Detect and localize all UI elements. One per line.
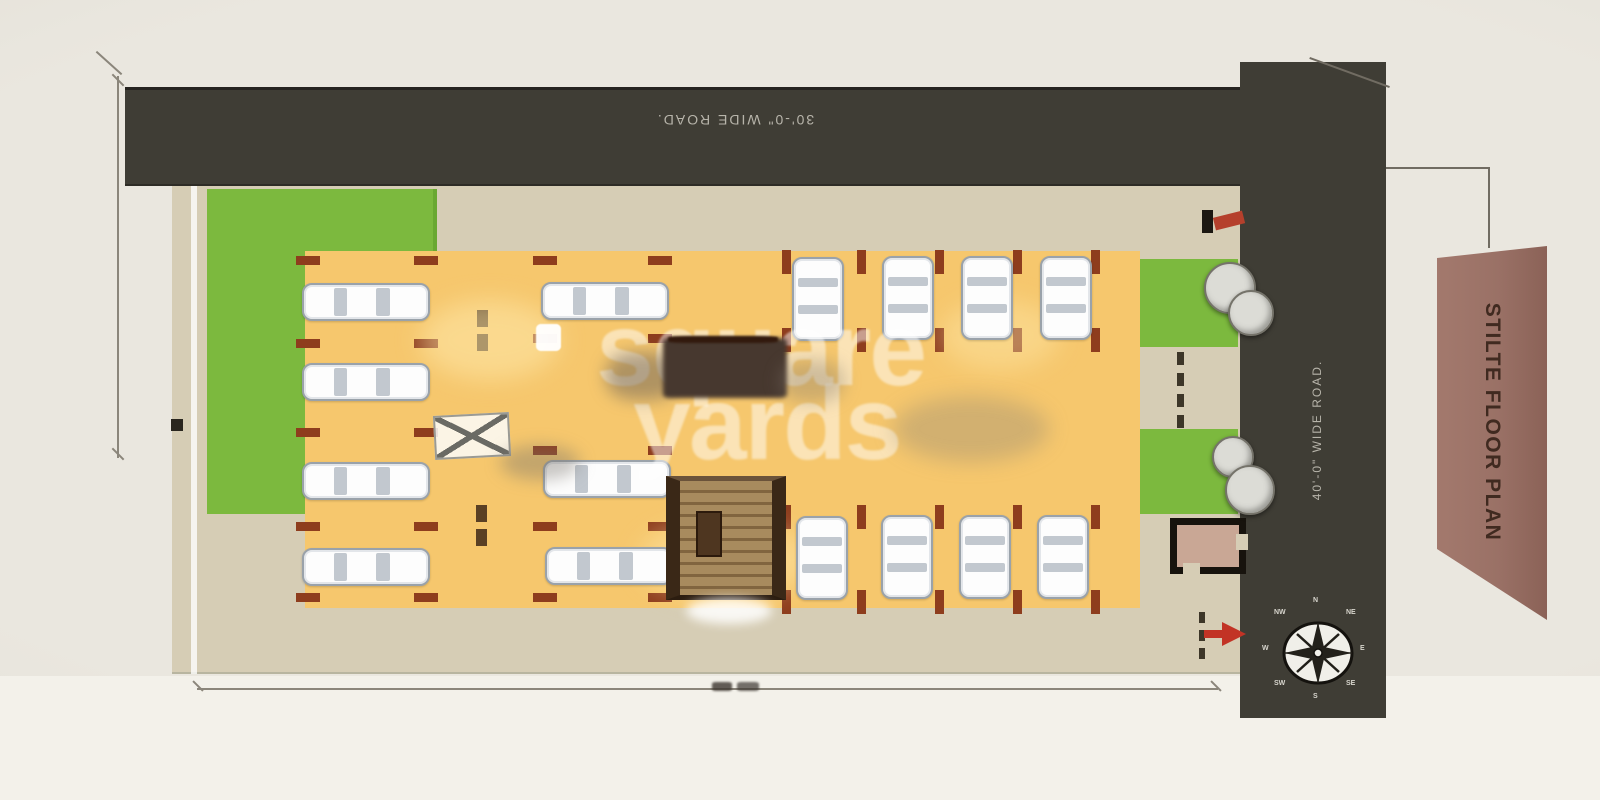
parking-area: [305, 251, 1140, 608]
compass-direction-label: NW: [1274, 609, 1286, 616]
compass-direction-label: W: [1262, 645, 1269, 652]
compass-direction-label: NE: [1346, 609, 1356, 616]
plan-title: STILTE FLOOR PLAN: [1480, 302, 1504, 541]
compass-direction-label: N: [1313, 597, 1318, 604]
compass-direction-label: SW: [1274, 680, 1285, 687]
leader-line: [1386, 167, 1490, 169]
plan-title-ribbon: STILTE FLOOR PLAN: [1437, 246, 1547, 620]
plot-boundary-line: [191, 186, 197, 674]
road-top: [125, 87, 1240, 186]
leader-line: [1488, 167, 1490, 248]
compass-direction-label: SE: [1346, 680, 1355, 687]
road-top-label: 30'-0" WIDE ROAD.: [565, 112, 905, 128]
compass-direction-label: S: [1313, 693, 1318, 700]
road-right-label: 40'-0" WIDE ROAD.: [1310, 320, 1324, 540]
lawn-right-top: [1138, 259, 1238, 347]
compass-direction-label: E: [1360, 645, 1365, 652]
bottom-dimension-line: [197, 688, 1218, 690]
dimension-tick: [96, 51, 123, 75]
lawn-right-bottom: [1138, 429, 1238, 514]
stilt-floor-plan: 30'-0" WIDE ROAD. 40'-0" WIDE ROAD. squa…: [0, 0, 1600, 800]
left-dimension-line: [117, 76, 119, 458]
